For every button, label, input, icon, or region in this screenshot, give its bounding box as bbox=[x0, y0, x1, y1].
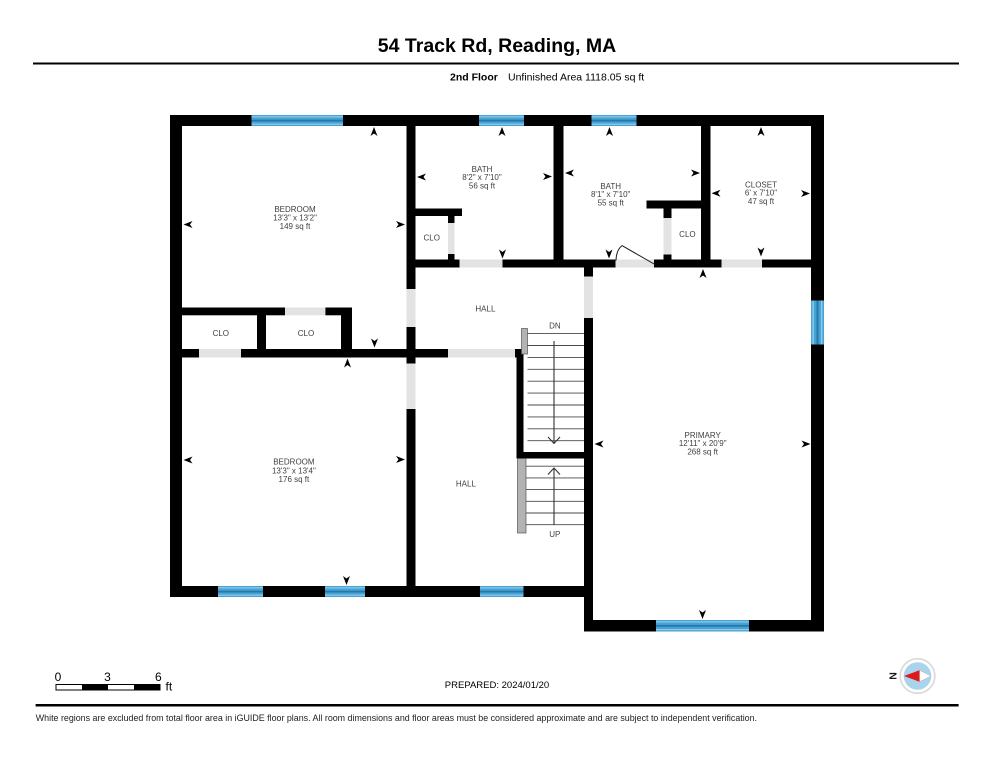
svg-text:55 sq ft: 55 sq ft bbox=[598, 198, 625, 207]
svg-text:HALL: HALL bbox=[456, 479, 477, 488]
svg-text:CLO: CLO bbox=[679, 230, 695, 239]
svg-text:13'3" x 13'4": 13'3" x 13'4" bbox=[272, 466, 316, 475]
svg-text:0: 0 bbox=[55, 670, 62, 684]
svg-text:149 sq ft: 149 sq ft bbox=[280, 222, 311, 231]
svg-text:CLO: CLO bbox=[423, 234, 439, 243]
svg-text:White regions are excluded fro: White regions are excluded from total fl… bbox=[36, 713, 757, 723]
svg-text:54 Track Rd, Reading, MA: 54 Track Rd, Reading, MA bbox=[378, 35, 616, 57]
svg-text:ft: ft bbox=[166, 680, 173, 694]
svg-text:176 sq ft: 176 sq ft bbox=[279, 475, 310, 484]
svg-text:PREPARED: 2024/01/20: PREPARED: 2024/01/20 bbox=[445, 680, 549, 691]
svg-text:UP: UP bbox=[549, 530, 560, 539]
svg-text:Unfinished Area 1118.05 sq ft: Unfinished Area 1118.05 sq ft bbox=[508, 72, 644, 84]
svg-text:56 sq ft: 56 sq ft bbox=[469, 181, 496, 190]
svg-text:47 sq ft: 47 sq ft bbox=[748, 197, 775, 206]
svg-text:2nd Floor: 2nd Floor bbox=[450, 72, 498, 84]
svg-text:6: 6 bbox=[155, 670, 162, 684]
svg-text:3: 3 bbox=[104, 670, 111, 684]
svg-text:268 sq ft: 268 sq ft bbox=[687, 447, 718, 456]
svg-text:HALL: HALL bbox=[475, 304, 496, 313]
svg-text:CLO: CLO bbox=[213, 329, 229, 338]
svg-text:N: N bbox=[888, 672, 900, 680]
svg-text:CLO: CLO bbox=[298, 329, 314, 338]
svg-text:DN: DN bbox=[549, 321, 561, 330]
svg-text:BEDROOM: BEDROOM bbox=[273, 458, 315, 467]
